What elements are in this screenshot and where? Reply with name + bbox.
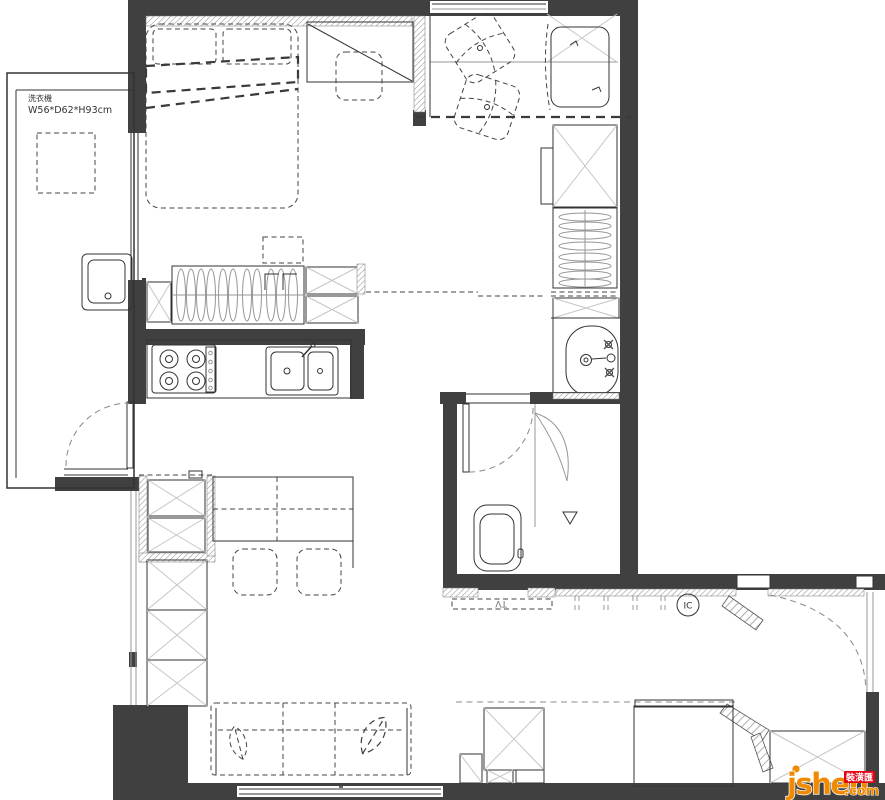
wall-ticks (575, 596, 665, 610)
tv-label: TV (494, 598, 507, 608)
sofa (211, 703, 411, 775)
living: TV IC (211, 594, 738, 783)
watermark: jsheh 裝潢匯 .com (786, 765, 879, 800)
hanging-wardrobe (553, 208, 617, 288)
wardrobe-row (147, 264, 365, 324)
tv-unit: TV (452, 598, 552, 609)
kitchen (147, 340, 351, 398)
stove (152, 345, 216, 393)
balcony-door-sill (64, 469, 128, 475)
leaf-cushion-2 (355, 712, 392, 759)
balcony-door (66, 402, 133, 468)
porch-angled-wall (720, 704, 769, 741)
desk (307, 22, 413, 82)
left-window (128, 133, 142, 280)
watermark-badge-text: 裝潢匯 (845, 772, 873, 784)
hanging-closet (172, 266, 304, 324)
porch (634, 700, 733, 786)
partition-sliding-panel (414, 16, 425, 112)
stool-1 (233, 549, 277, 595)
floor-plan: 洗衣機 W56*D62*H93cm (0, 0, 885, 800)
watermark-suffix: .com (844, 784, 879, 799)
entry-door-leaf (722, 596, 763, 630)
bathtub (551, 318, 620, 399)
bathroom (463, 394, 577, 571)
dashed-unit (263, 237, 303, 263)
window-side-cabinet (460, 708, 544, 783)
laundry-sink (82, 254, 132, 310)
bedroom2 (416, 9, 632, 142)
pillow-left (153, 29, 216, 64)
entry-door-swing (770, 595, 866, 690)
mattress (545, 24, 609, 110)
corridor (366, 292, 545, 296)
entry-threshold (737, 575, 770, 588)
shower (535, 404, 577, 527)
intercom-label: IC (684, 602, 693, 612)
kitchen-sink (266, 343, 338, 395)
bathroom-door (463, 404, 533, 472)
washing-machine-size: W56*D62*H93cm (28, 105, 112, 116)
washing-machine-outline (37, 133, 95, 193)
washing-machine-name: 洗衣機 (28, 93, 52, 103)
windows (64, 1, 873, 797)
balcony: 洗衣機 W56*D62*H93cm (7, 73, 134, 488)
desk-chair (336, 52, 382, 100)
floor-cushion-2 (452, 72, 523, 143)
bedroom2-top-window (430, 1, 548, 13)
rod-bracket (265, 274, 297, 290)
stool-2 (297, 549, 341, 595)
floor-drain (563, 512, 577, 524)
closet-column (541, 125, 620, 399)
entry-sidelight (867, 592, 873, 692)
floor-plan-drawing: 洗衣機 W56*D62*H93cm (0, 0, 885, 800)
blanket-fold (146, 57, 298, 93)
walls (55, 0, 885, 800)
toilet (474, 505, 523, 571)
dining (213, 477, 353, 595)
bedroom1 (146, 22, 413, 263)
bed-outline (146, 24, 298, 208)
intercom: IC (677, 594, 699, 616)
bottom-window (237, 786, 443, 797)
